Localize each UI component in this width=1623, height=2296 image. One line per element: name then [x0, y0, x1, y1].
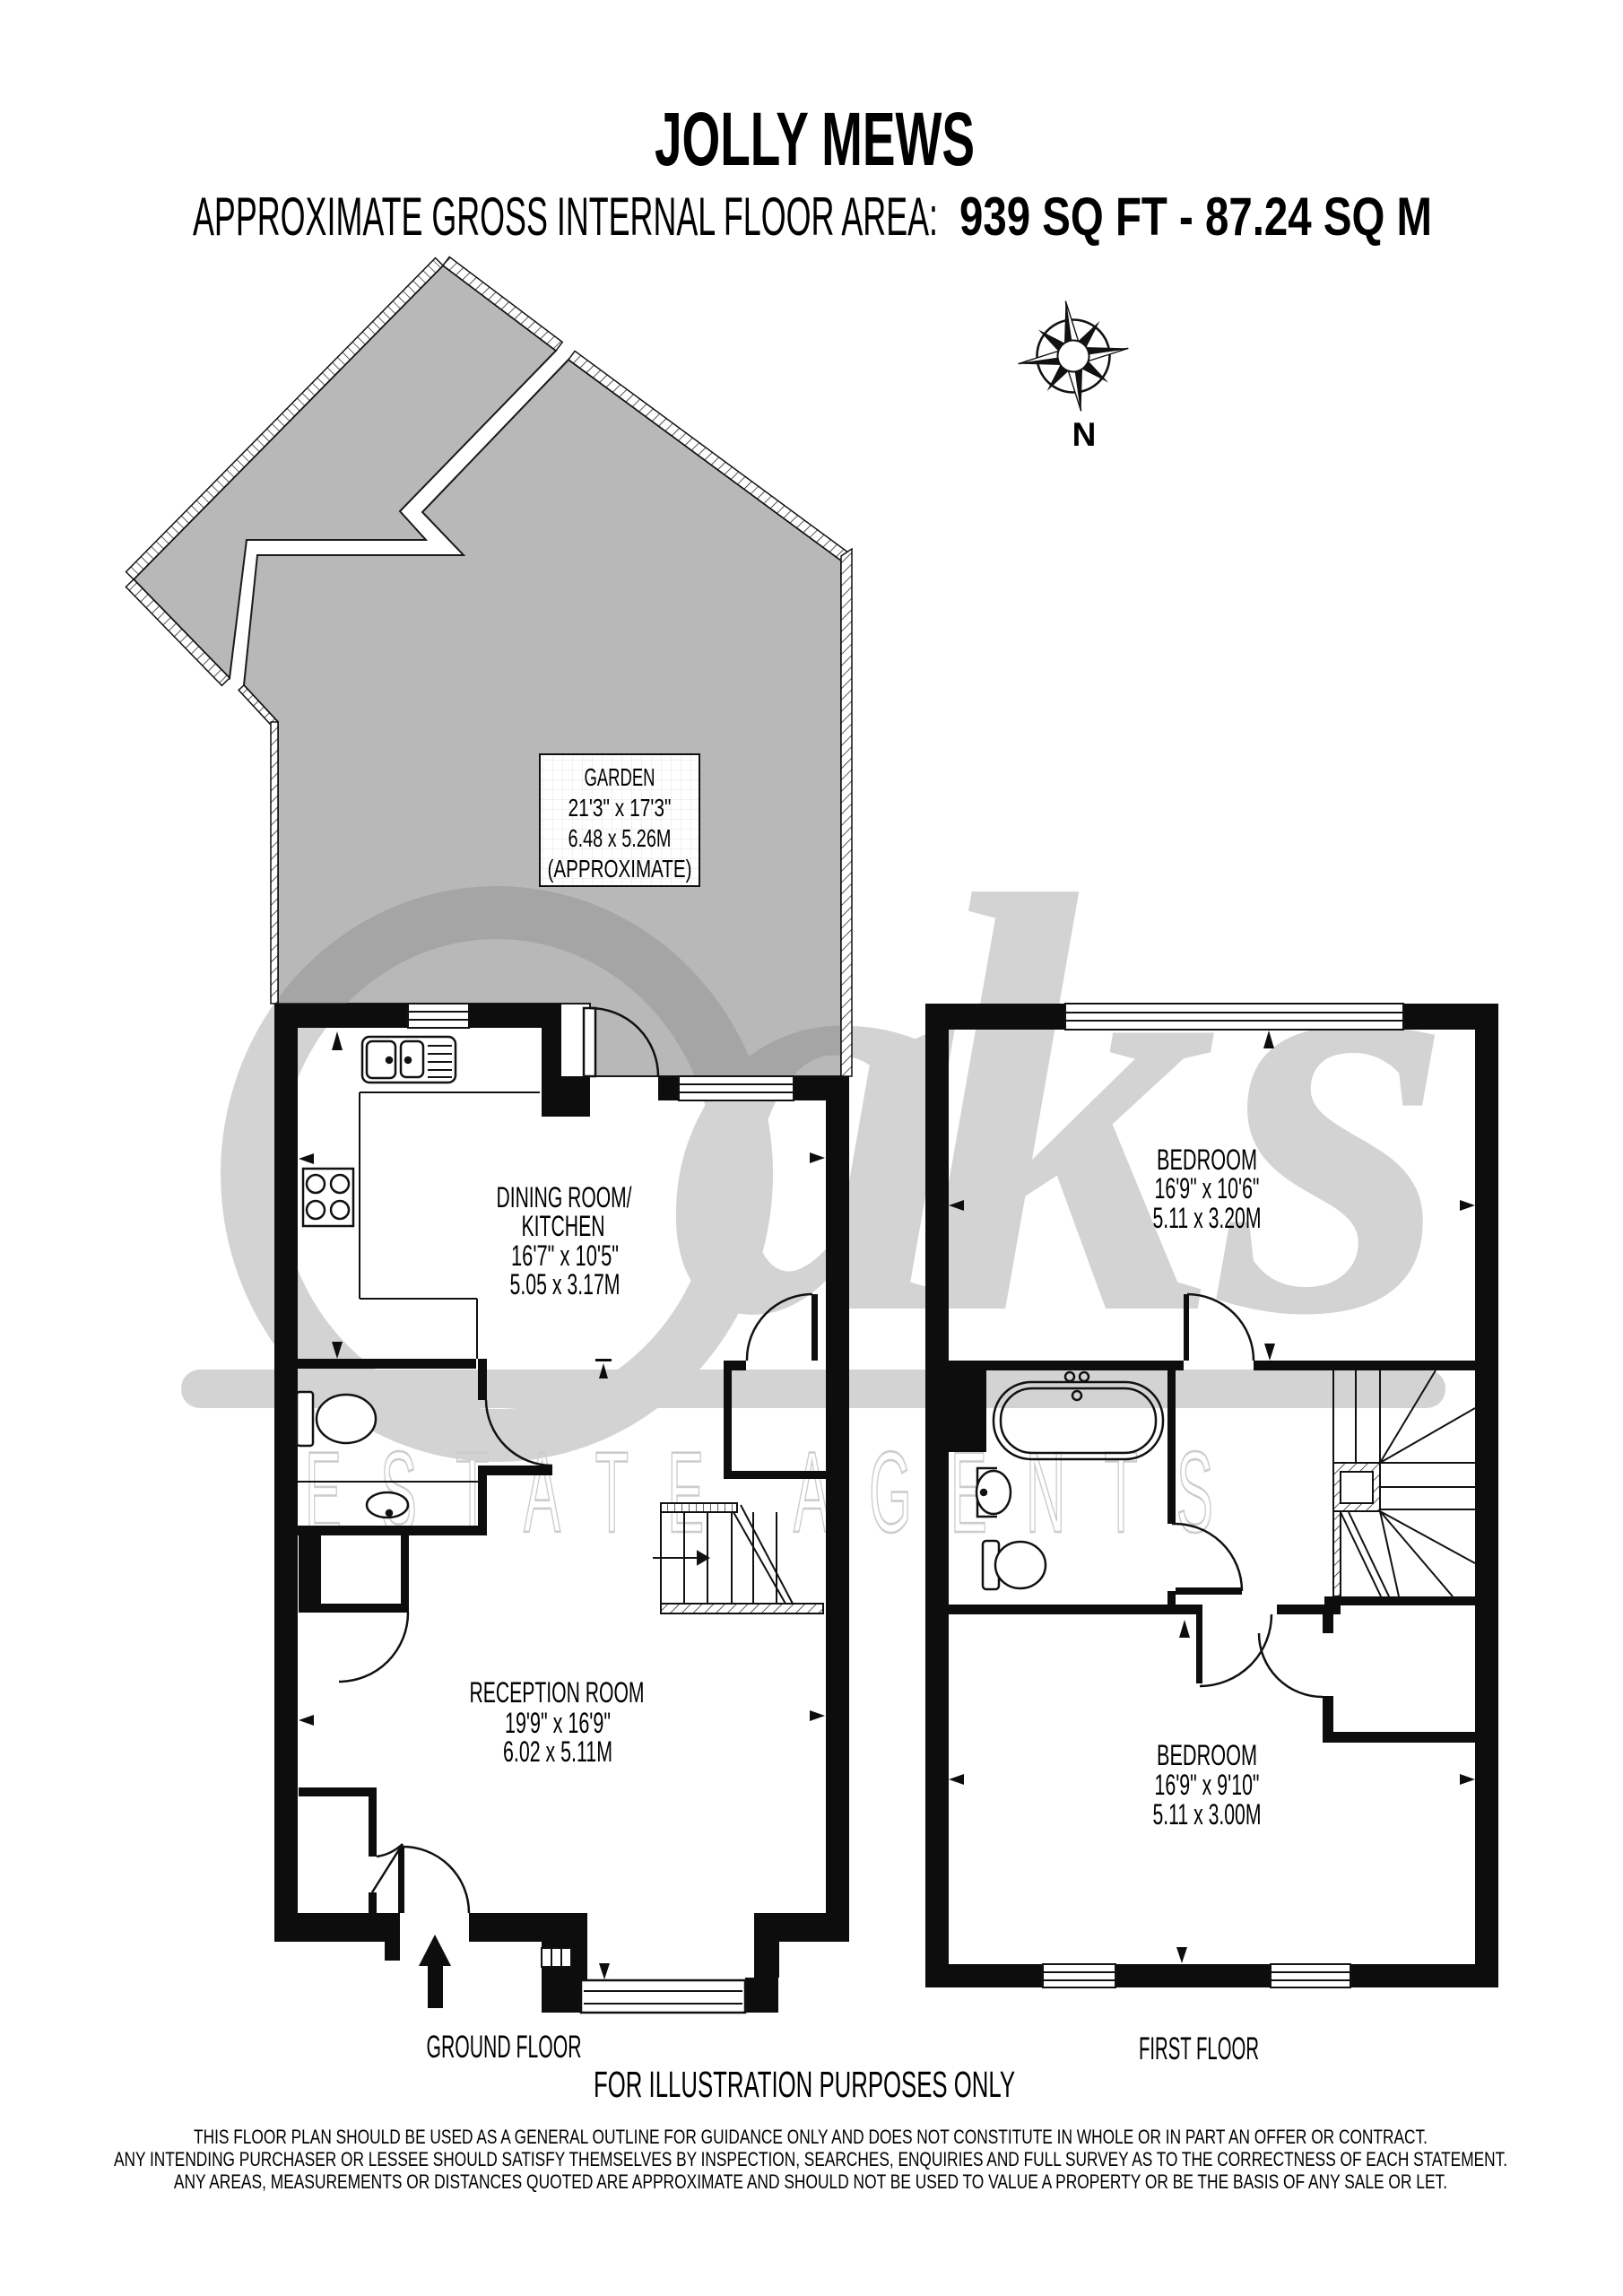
svg-text:(APPROXIMATE): (APPROXIMATE) — [548, 855, 692, 883]
svg-text:BEDROOM: BEDROOM — [1157, 1739, 1257, 1771]
svg-text:aks: aks — [669, 773, 1454, 1439]
svg-text:FIRST FLOOR: FIRST FLOOR — [1139, 2031, 1259, 2066]
svg-text:KITCHEN: KITCHEN — [522, 1210, 605, 1242]
svg-text:5.05 x 3.17M: 5.05 x 3.17M — [510, 1268, 621, 1300]
svg-text:16'9" x 9'10": 16'9" x 9'10" — [1155, 1769, 1260, 1801]
svg-text:21'3" x 17'3": 21'3" x 17'3" — [568, 794, 672, 822]
svg-text:ESTATE AGENTS: ESTATE AGENTS — [305, 1429, 1252, 1557]
svg-text:19'9" x 16'9": 19'9" x 16'9" — [505, 1707, 611, 1739]
svg-text:GROUND FLOOR: GROUND FLOOR — [427, 2030, 582, 2065]
svg-text:THIS FLOOR PLAN SHOULD BE USED: THIS FLOOR PLAN SHOULD BE USED AS A GENE… — [194, 2126, 1428, 2148]
svg-text:ANY AREAS, MEASUREMENTS OR DIS: ANY AREAS, MEASUREMENTS OR DISTANCES QUO… — [174, 2171, 1447, 2193]
svg-text:ANY INTENDING PURCHASER OR LES: ANY INTENDING PURCHASER OR LESSEE SHOULD… — [114, 2149, 1507, 2170]
svg-text:16'7" x 10'5": 16'7" x 10'5" — [511, 1239, 619, 1272]
svg-text:BEDROOM: BEDROOM — [1157, 1144, 1257, 1176]
svg-text:DINING ROOM/: DINING ROOM/ — [497, 1181, 632, 1213]
svg-text:5.11 x 3.00M: 5.11 x 3.00M — [1153, 1798, 1262, 1831]
svg-text:FOR ILLUSTRATION PURPOSES ONLY: FOR ILLUSTRATION PURPOSES ONLY — [594, 2064, 1015, 2105]
svg-text:GARDEN: GARDEN — [585, 763, 655, 791]
svg-text:APPROXIMATE GROSS INTERNAL FLO: APPROXIMATE GROSS INTERNAL FLOOR AREA: — [193, 187, 938, 247]
svg-text:RECEPTION ROOM: RECEPTION ROOM — [470, 1676, 645, 1709]
svg-text:939 SQ FT - 87.24 SQ M: 939 SQ FT - 87.24 SQ M — [959, 187, 1432, 247]
svg-text:5.11 x 3.20M: 5.11 x 3.20M — [1153, 1202, 1262, 1234]
svg-text:6.48 x 5.26M: 6.48 x 5.26M — [568, 824, 672, 852]
svg-text:JOLLY MEWS: JOLLY MEWS — [655, 97, 975, 181]
svg-text:16'9" x 10'6": 16'9" x 10'6" — [1155, 1172, 1260, 1205]
svg-text:N: N — [1072, 416, 1097, 453]
svg-text:6.02 x 5.11M: 6.02 x 5.11M — [503, 1735, 612, 1768]
